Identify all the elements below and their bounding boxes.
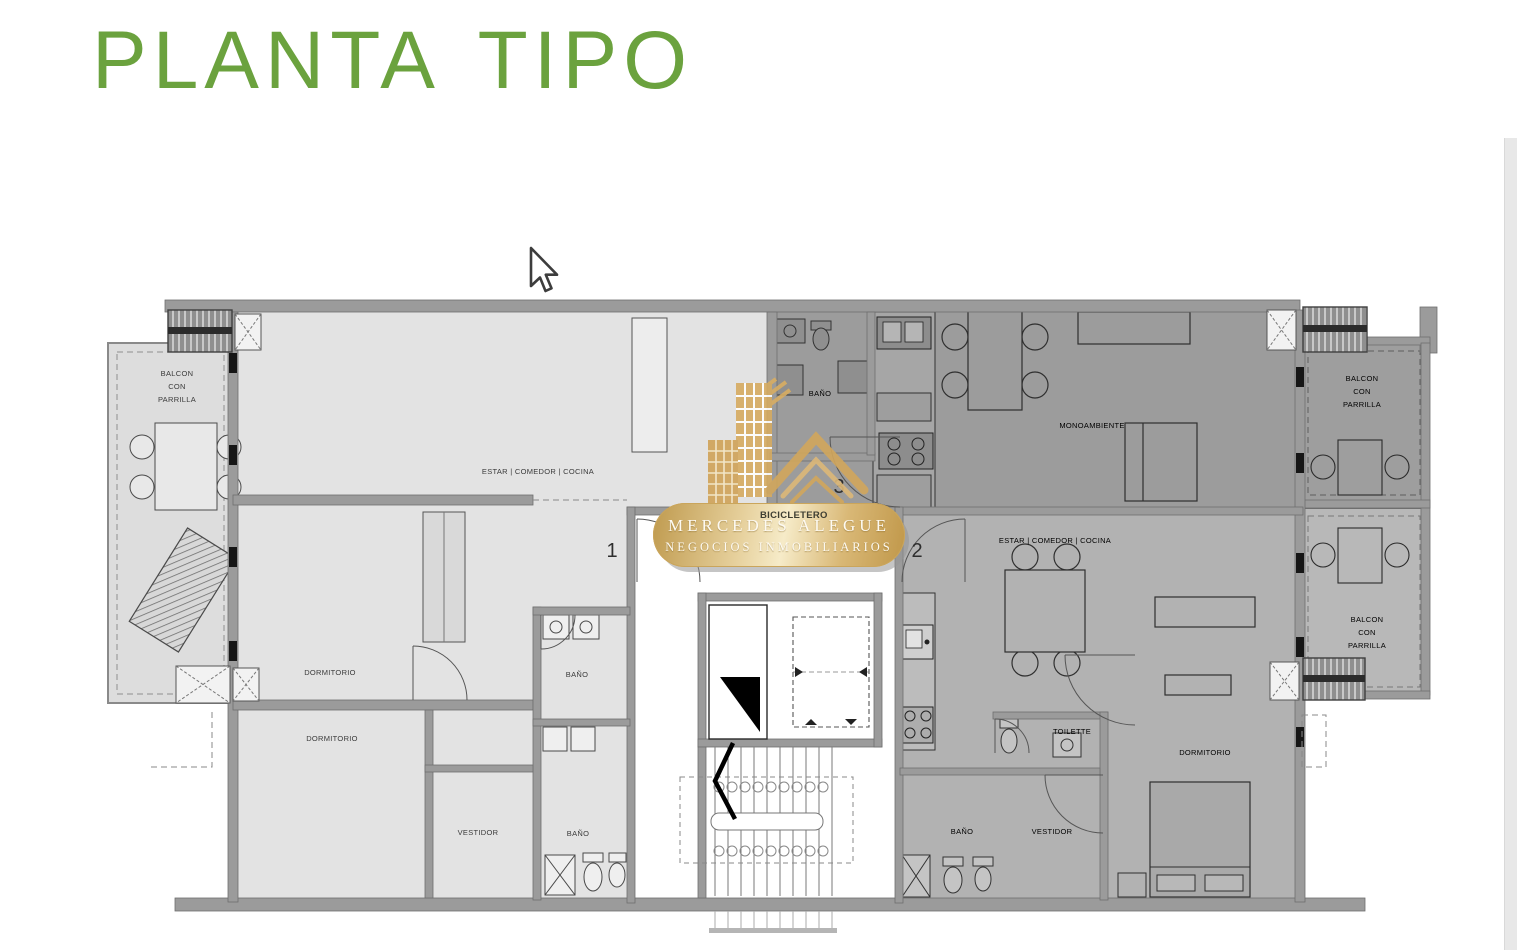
label-bicicletero: BICICLETERO — [760, 510, 828, 521]
label-balcon-rt-1: BALCON — [1346, 374, 1379, 383]
page-title: PLANTA TIPO — [92, 14, 693, 108]
page: PLANTA TIPO — [0, 0, 1517, 950]
label-unit2-bano: BAÑO — [951, 827, 973, 836]
mouse-cursor-icon — [528, 246, 564, 296]
label-unit3-monoambiente: MONOAMBIENTE — [1059, 421, 1124, 430]
label-unit2-vestidor: VESTIDOR — [1032, 827, 1073, 836]
unit3-kitchen — [873, 312, 935, 512]
label-unit1-dormitorio-1: DORMITORIO — [304, 668, 356, 677]
label-unit1-vestidor: VESTIDOR — [458, 828, 499, 837]
label-balcon-rt-2: CON — [1353, 387, 1371, 396]
label-unit1-dormitorio-2: DORMITORIO — [306, 734, 358, 743]
unit-number-1: 1 — [606, 540, 617, 562]
unit1-kitchen-counter — [632, 318, 667, 452]
unit1-wardrobe — [423, 512, 465, 642]
label-unit1-bano-2: BAÑO — [567, 829, 589, 838]
label-balcon-left-1: BALCON — [161, 369, 194, 378]
label-unit1-estar: ESTAR | COMEDOR | COCINA — [482, 467, 594, 476]
label-balcon-left-3: PARRILLA — [158, 395, 196, 404]
watermark-tagline: NEGOCIOS INMOBILIARIOS — [665, 540, 892, 555]
label-balcon-rb-1: BALCON — [1351, 615, 1384, 624]
label-unit1-bano-1: BAÑO — [566, 670, 588, 679]
label-unit2-dormitorio: DORMITORIO — [1179, 748, 1231, 757]
label-balcon-rb-3: PARRILLA — [1348, 641, 1386, 650]
label-unit2-estar: ESTAR | COMEDOR | COCINA — [999, 536, 1111, 545]
label-unit2-toilette: TOILETTE — [1053, 727, 1091, 736]
unit-number-2: 2 — [911, 540, 922, 562]
label-balcon-left-2: CON — [168, 382, 186, 391]
page-edge-strip — [1504, 138, 1517, 950]
label-balcon-rb-2: CON — [1358, 628, 1376, 637]
label-balcon-rt-3: PARRILLA — [1343, 400, 1381, 409]
unit2-kitchen — [900, 593, 935, 750]
